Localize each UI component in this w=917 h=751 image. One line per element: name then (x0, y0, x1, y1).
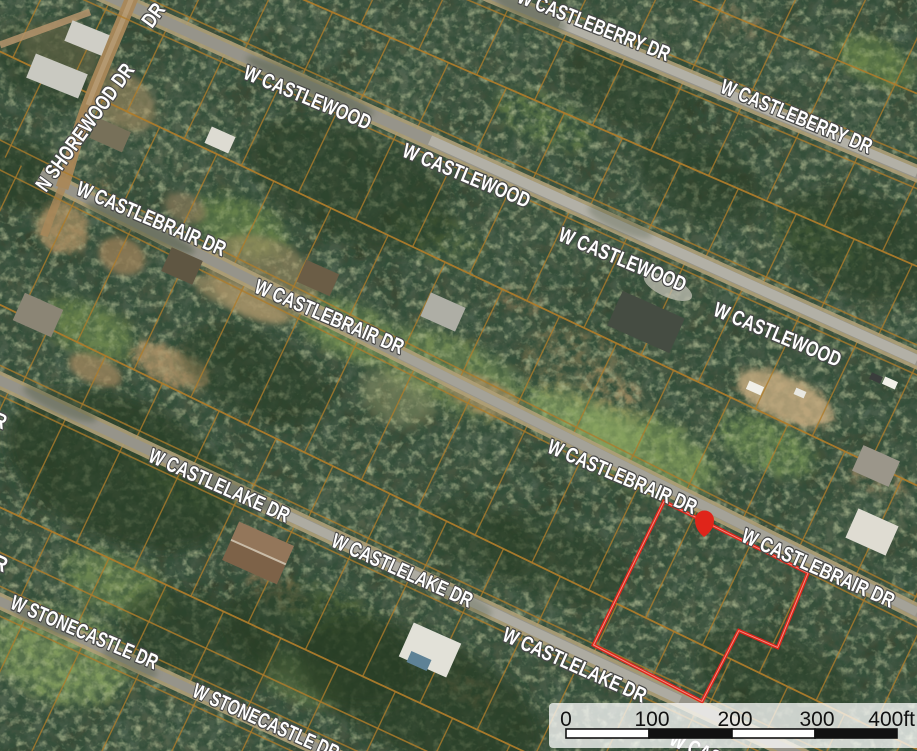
svg-text:0: 0 (560, 708, 572, 731)
svg-text:300: 300 (799, 708, 834, 731)
svg-text:400ft: 400ft (868, 708, 915, 731)
svg-text:200: 200 (717, 708, 752, 731)
svg-text:100: 100 (634, 708, 669, 731)
